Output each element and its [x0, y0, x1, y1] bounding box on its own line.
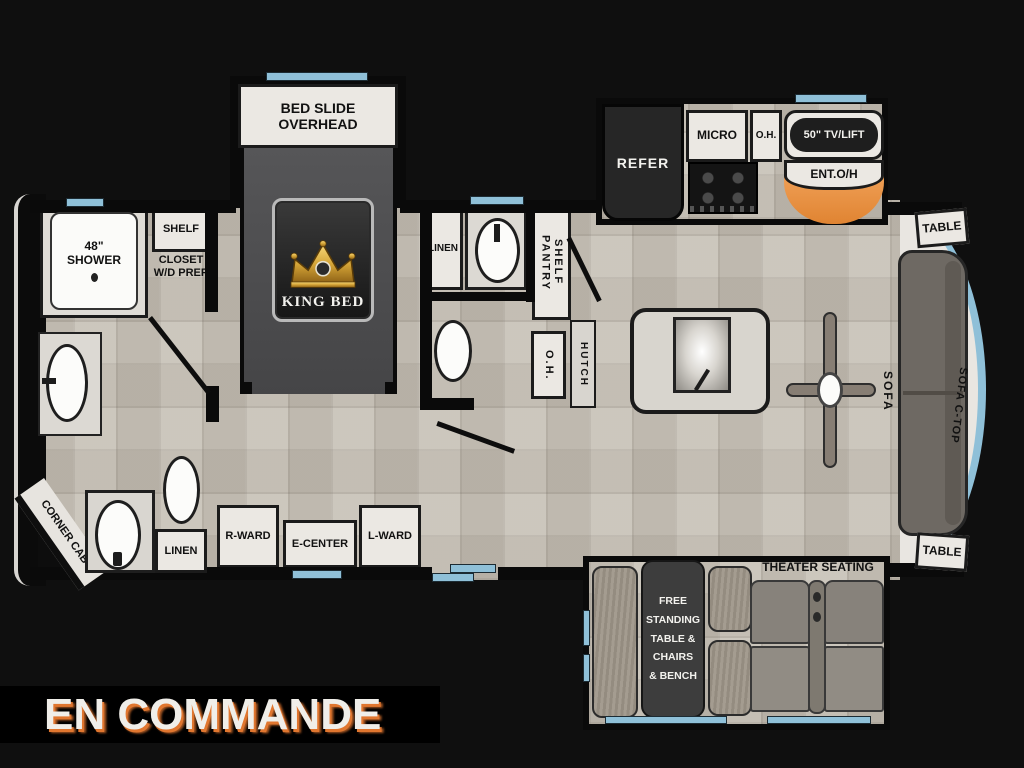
right-wardrobe: R-WARD — [217, 505, 279, 568]
wall-stub — [385, 382, 397, 394]
theater-seat-back — [750, 580, 810, 644]
refrigerator: REFER — [602, 104, 684, 221]
rear-table-top: TABLE — [915, 208, 970, 248]
entertainment-center: E-CENTER — [283, 520, 357, 568]
hutch-label: HUTCH — [577, 342, 589, 387]
linen-cabinet-front: LINEN — [155, 529, 207, 573]
slide-trim — [583, 654, 590, 682]
cooktop-stove — [688, 162, 758, 214]
hutch-counter: HUTCH — [570, 320, 596, 408]
slide-trim — [767, 716, 871, 724]
entry-step — [450, 564, 496, 573]
slide-trim — [583, 610, 590, 646]
status-banner-text: EN COMMANDE — [0, 690, 381, 740]
window-trim — [292, 570, 342, 579]
dinette-chair — [708, 640, 752, 716]
left-wardrobe: L-WARD — [359, 505, 421, 568]
wall-bath-bedroom — [205, 200, 218, 312]
entertainment-overhead: ENT.O/H — [784, 160, 884, 190]
bed-slide-label: BED SLIDE OVERHEAD — [278, 100, 357, 132]
refrigerator-label: REFER — [617, 155, 669, 171]
kitchen-slide-window-trim — [795, 94, 867, 103]
console-cupholder — [813, 592, 821, 602]
theater-seat-cushion — [750, 646, 810, 712]
window-trim — [470, 196, 524, 205]
shower-drain — [91, 273, 98, 282]
king-bed-logo: KING BED — [272, 198, 374, 322]
overhead-cabinet-mid: O.H. — [531, 331, 566, 399]
tv-lift: 50" TV/LIFT — [790, 118, 878, 152]
dinette-chair — [708, 566, 752, 632]
bath-stool — [163, 456, 200, 524]
sink-faucet — [42, 378, 56, 384]
right-wardrobe-label: R-WARD — [225, 530, 270, 543]
sofa-label: SOFA — [880, 356, 894, 426]
status-banner: EN COMMANDE — [0, 686, 440, 743]
toilet-flush — [113, 552, 122, 566]
shower-label: 48" SHOWER — [67, 240, 121, 268]
microwave: MICRO — [686, 110, 748, 162]
overhead-cabinet-kitchen-label: O.H. — [756, 130, 777, 142]
entertainment-center-label: E-CENTER — [292, 538, 348, 551]
rv-floorplan-scene: BED SLIDE OVERHEAD KING BED REFER MICRO … — [0, 0, 1024, 768]
tv-lift-label: 50" TV/LIFT — [804, 129, 865, 141]
rear-table-bottom: TABLE — [915, 532, 969, 572]
wall-bottom-mid — [498, 567, 586, 580]
wall-steps-stub — [420, 398, 474, 410]
crown-icon — [284, 238, 362, 290]
entry-step — [432, 573, 474, 582]
bed-slide-window-trim — [266, 72, 368, 81]
wall-bedroom-midbath — [420, 200, 432, 402]
pantry-shelf-label: PANTRY SHELF — [539, 235, 564, 291]
wall-stub — [240, 382, 252, 394]
theater-seating-label: THEATER SEATING — [756, 561, 880, 575]
window-trim — [66, 198, 104, 207]
ceiling-fan-hub — [817, 372, 843, 408]
pantry-shelf: PANTRY SHELF — [532, 205, 571, 320]
toilet-mid-flush — [494, 224, 500, 242]
overhead-cabinet-kitchen: O.H. — [750, 110, 782, 162]
rear-table-top-label: TABLE — [922, 219, 962, 236]
linen-mid-label: LINEN — [428, 243, 458, 255]
overhead-cabinet-mid-label: O.H. — [542, 350, 555, 381]
dinette-table: FREE STANDING TABLE & CHAIRS & BENCH — [641, 560, 705, 718]
dinette-label: FREE STANDING TABLE & CHAIRS & BENCH — [646, 592, 700, 686]
wall-midbath-horizontal — [420, 292, 532, 301]
theater-seat-back — [824, 580, 884, 644]
left-wardrobe-label: L-WARD — [368, 530, 412, 543]
entertainment-overhead-label: ENT.O/H — [810, 168, 857, 182]
wall-midbath-vertical — [526, 206, 535, 302]
rear-table-bottom-label: TABLE — [922, 544, 962, 560]
theater-seat-cushion — [824, 646, 884, 712]
bed-slide-label-box: BED SLIDE OVERHEAD — [238, 84, 398, 148]
dinette-bench — [592, 566, 638, 718]
king-bed-label: KING BED — [282, 294, 365, 311]
microwave-label: MICRO — [697, 129, 737, 143]
console-cupholder — [813, 612, 821, 622]
shower-pan: 48" SHOWER — [50, 212, 138, 310]
linen-front-label: LINEN — [165, 545, 198, 558]
shelf-label: SHELF — [163, 223, 199, 236]
bath-stool-mid — [434, 320, 472, 382]
slide-trim — [605, 716, 727, 724]
